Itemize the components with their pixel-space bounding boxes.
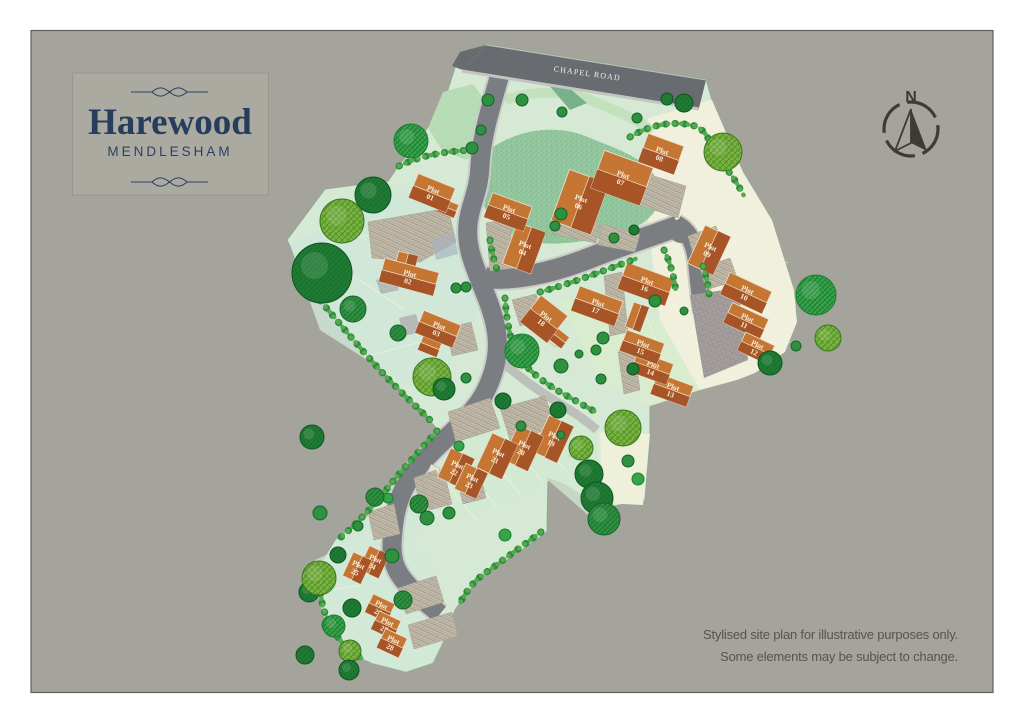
svg-text:Harewood: Harewood xyxy=(88,102,252,143)
svg-text:MENDLESHAM: MENDLESHAM xyxy=(107,144,232,159)
svg-text:Some elements may be subject t: Some elements may be subject to change. xyxy=(720,649,958,664)
svg-text:Stylised site plan for illustr: Stylised site plan for illustrative purp… xyxy=(703,627,958,642)
svg-text:N: N xyxy=(905,89,917,106)
